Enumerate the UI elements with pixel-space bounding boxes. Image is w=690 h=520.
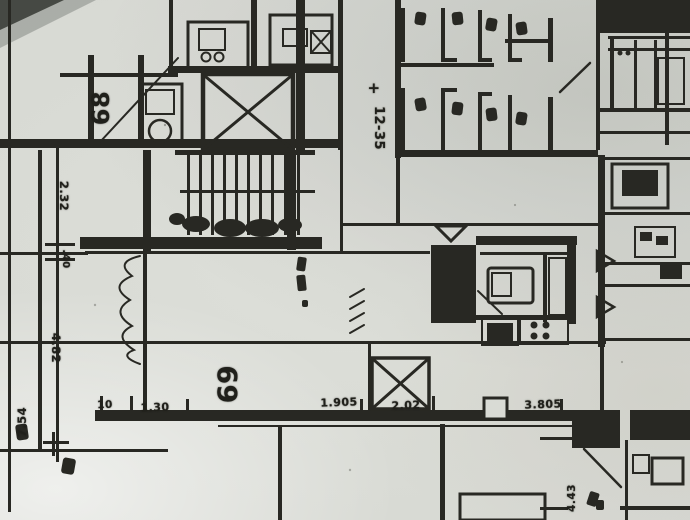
floor-plan-linework (0, 0, 690, 520)
elevation-marker-sign: + (365, 79, 383, 97)
elevation-marker-value: 12-35 (370, 97, 388, 159)
dim-label-bottom-5: 3.805 (520, 396, 566, 412)
floor-plan-photo: 68 69 + 12-35 2.32 .40 4.82 7.54 10 1.30… (0, 0, 690, 520)
dim-label-left-4: 7.54 (14, 392, 30, 452)
dim-label-bottom-1: 10 (94, 398, 116, 413)
room-number-69: 69 (212, 358, 244, 410)
dim-label-bottom-4: 2.02 (386, 397, 426, 412)
dim-label-left-3: 4.82 (48, 313, 64, 383)
dim-label-right-bottom: 4.43 (565, 476, 579, 520)
dim-label-bottom-2: 1.30 (134, 399, 176, 414)
dim-label-left-1: 2.32 (56, 161, 72, 231)
dim-label-left-2: .40 (59, 245, 73, 273)
dim-label-bottom-3: 1.905 (316, 394, 362, 410)
room-number-68: 68 (86, 80, 116, 136)
